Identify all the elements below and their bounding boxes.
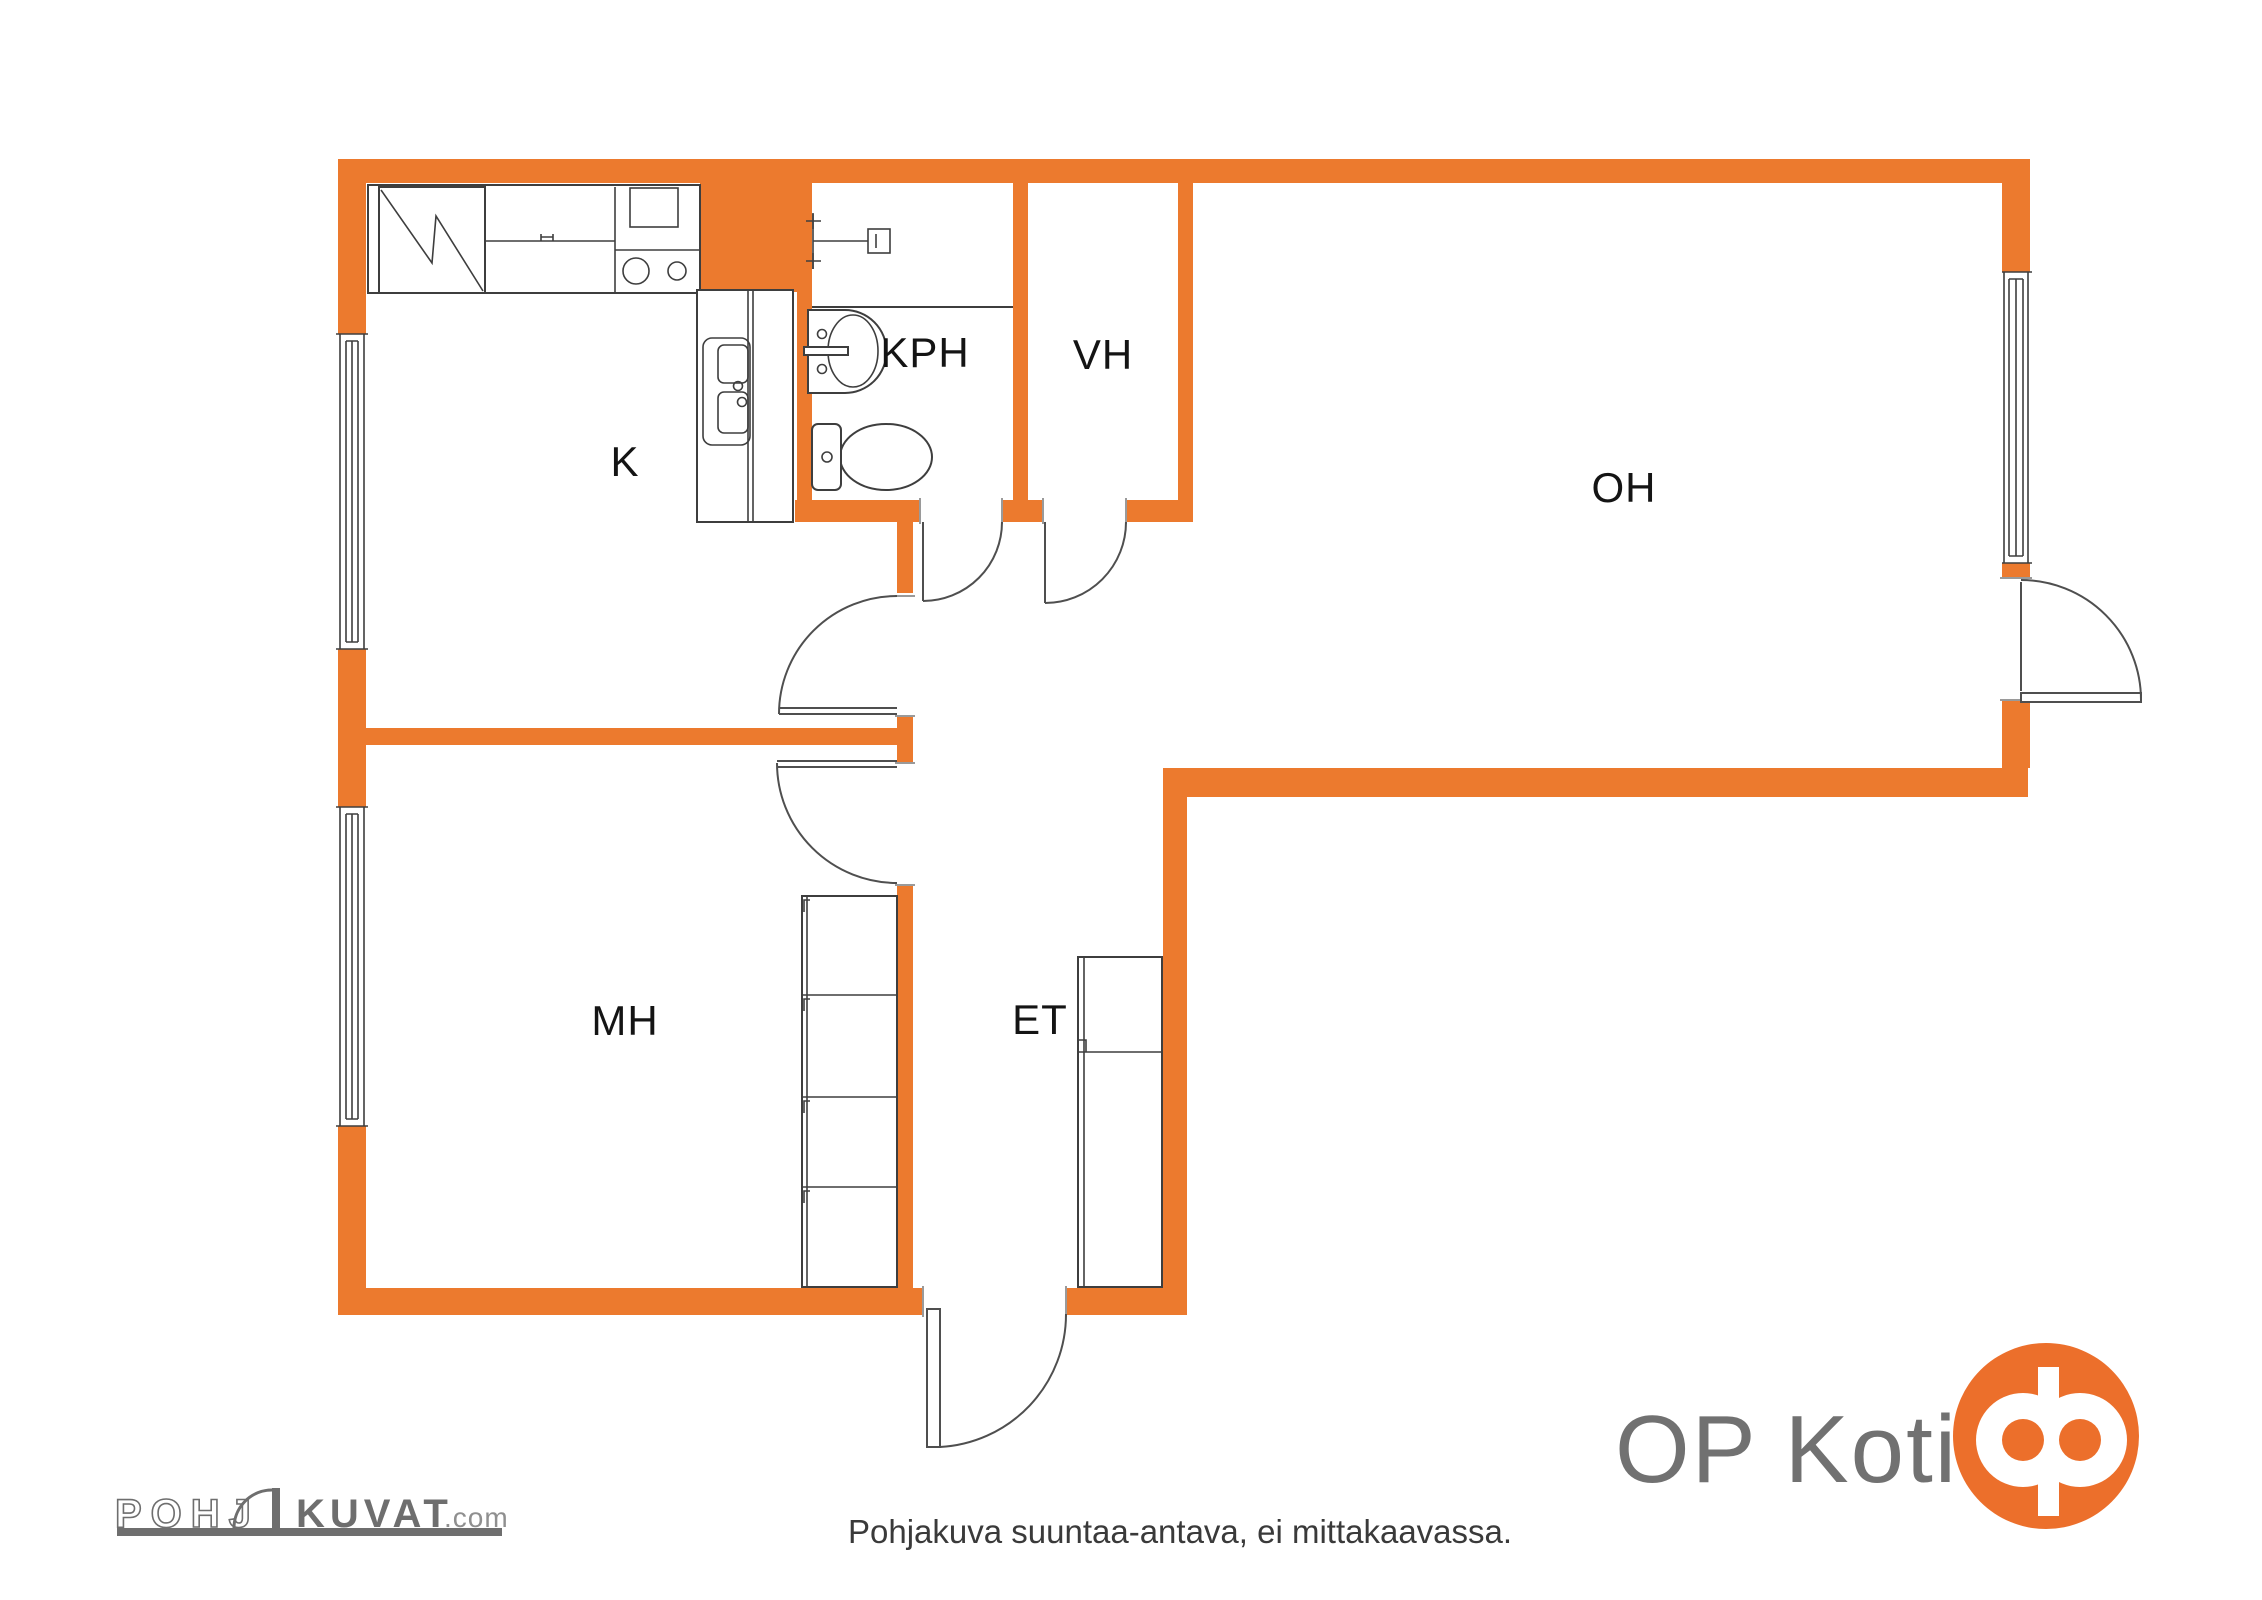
room-label-et: ET: [1012, 996, 1068, 1043]
room-label-kph: KPH: [880, 329, 969, 376]
wardrobe-icon-mh: [802, 896, 897, 1287]
op-logo-icon: [1953, 1343, 2139, 1529]
logo-text-pohj: POHJ: [115, 1492, 260, 1536]
shower-icon: [806, 213, 890, 269]
pohjakuvat-logo: POHJ KUVAT .com: [115, 1488, 509, 1536]
window-icon-left-upper: [336, 334, 368, 649]
door-swing-icon-kph: [920, 498, 1002, 601]
footer-disclaimer: Pohjakuva suuntaa-antava, ei mittakaavas…: [848, 1513, 1512, 1550]
window-icon-right: [2002, 272, 2032, 563]
kitchen-sink-icon: [697, 290, 793, 522]
door-swing-icon-k: [779, 596, 915, 716]
room-label-vh: VH: [1073, 331, 1133, 378]
walls: [338, 159, 2030, 1315]
door-swing-icon-entrance: [923, 1286, 1066, 1447]
door-swing-icon-balcony: [2000, 578, 2141, 702]
toilet-icon: [812, 424, 932, 490]
wardrobe-icon-et: [1078, 957, 1162, 1287]
logo-text-com: .com: [444, 1502, 509, 1533]
washbasin-icon: [804, 310, 886, 393]
door-swing-icon-mh: [777, 761, 915, 885]
fridge-icon: [379, 187, 485, 293]
op-koti-logo: OP Koti: [1615, 1343, 2139, 1529]
floor-plan-page: K KPH VH OH MH ET Pohjakuva suuntaa-anta…: [0, 0, 2262, 1600]
closets: [802, 896, 1162, 1287]
room-label-mh: MH: [591, 997, 658, 1044]
op-koti-wordmark: OP Koti: [1615, 1396, 1958, 1503]
doors: [777, 498, 2141, 1447]
door-swing-icon-vh: [1043, 498, 1126, 603]
floor-plan-drawing: K KPH VH OH MH ET Pohjakuva suuntaa-anta…: [0, 0, 2262, 1600]
logo-text-kuvat: KUVAT: [296, 1492, 453, 1536]
room-label-k: K: [610, 438, 639, 485]
room-label-oh: OH: [1592, 464, 1657, 511]
window-icon-left-lower: [336, 807, 368, 1126]
